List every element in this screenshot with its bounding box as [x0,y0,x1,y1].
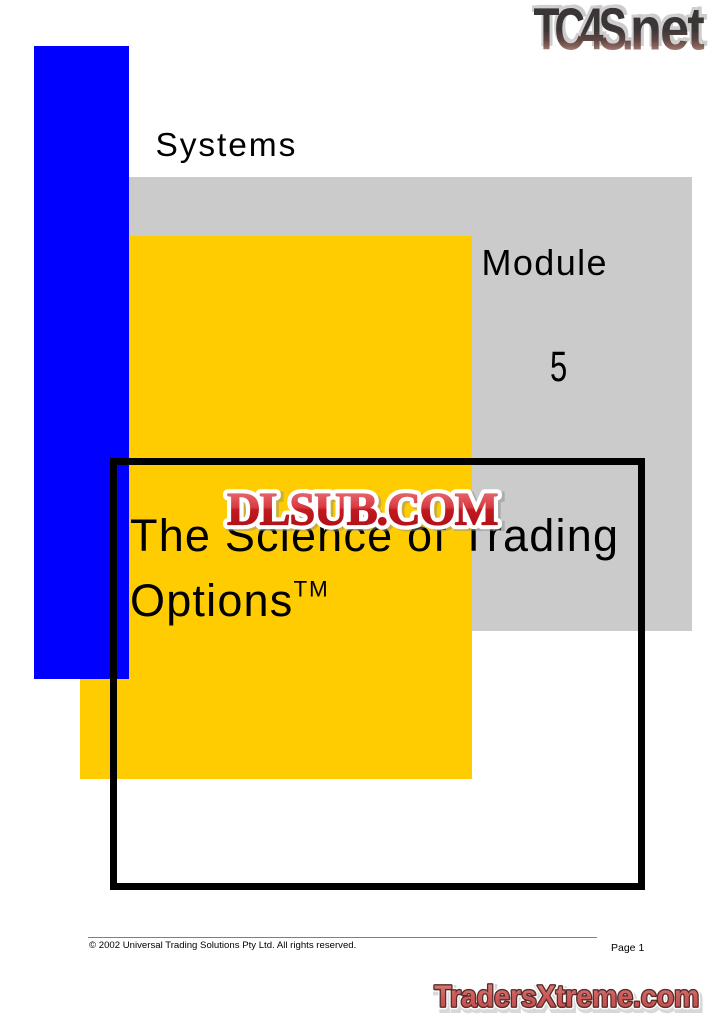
svg-text:TradersXtreme.com: TradersXtreme.com [434,980,699,1014]
svg-text:DLSUB.COM: DLSUB.COM [227,484,498,535]
svg-text:TC4S.: TC4S. [534,0,631,60]
svg-text:net: net [630,0,705,60]
